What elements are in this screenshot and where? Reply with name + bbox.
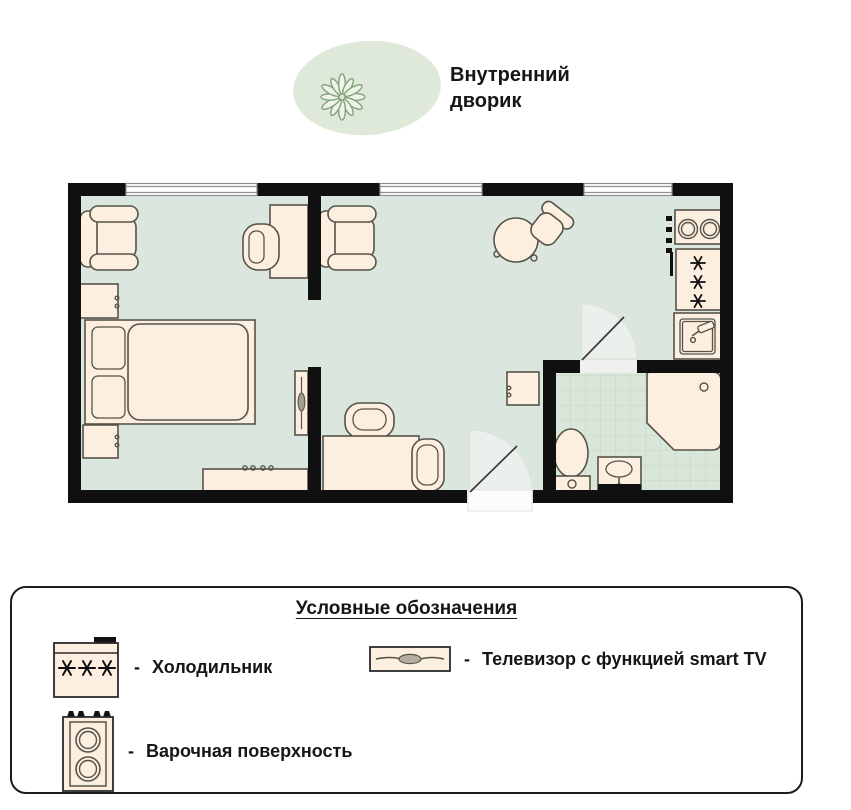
kitchen-sink-icon [674,313,721,359]
legend-dash: - [464,649,470,670]
legend-label-cooktop: Варочная поверхность [146,741,352,762]
refrigerator-icon [52,634,122,700]
cooktop-icon [60,708,116,794]
legend-label-smart-tv: Телевизор с функцией smart TV [482,649,767,670]
legend-dash: - [134,657,140,678]
legend-item-smart-tv: - Телевизор с функцией smart TV [368,644,767,674]
legend-item-cooktop: - Варочная поверхность [60,708,352,794]
stove-icon [675,210,721,244]
legend-title: Условные обозначения [12,598,801,620]
refrigerator-plan-icon [676,249,721,310]
armchair-living-icon [318,206,376,270]
tv-bedroom-icon [295,371,308,435]
lounge-chair-icon [412,439,444,491]
armchair-bedroom-icon [80,206,138,270]
legend-box: Условные обозначения [10,586,803,794]
hall-cabinet-icon [507,372,539,405]
nightstand-bottom-icon [83,425,119,458]
legend-dash: - [128,741,134,762]
nightstand-top-icon [80,284,119,318]
bed-icon [85,320,255,424]
table-chair-icon [345,403,394,438]
round-table-icon [494,218,538,262]
desk-chair-icon [243,224,279,270]
floor-plan [0,0,851,560]
legend-item-refrigerator: - Холодильник [52,635,272,699]
dresser-icon [203,466,308,491]
toilet-icon [554,429,590,492]
washbasin-icon [598,457,641,490]
work-table-icon [323,436,419,491]
window-icons [126,184,672,196]
smart-tv-icon [368,645,452,673]
legend-label-refrigerator: Холодильник [152,657,272,678]
